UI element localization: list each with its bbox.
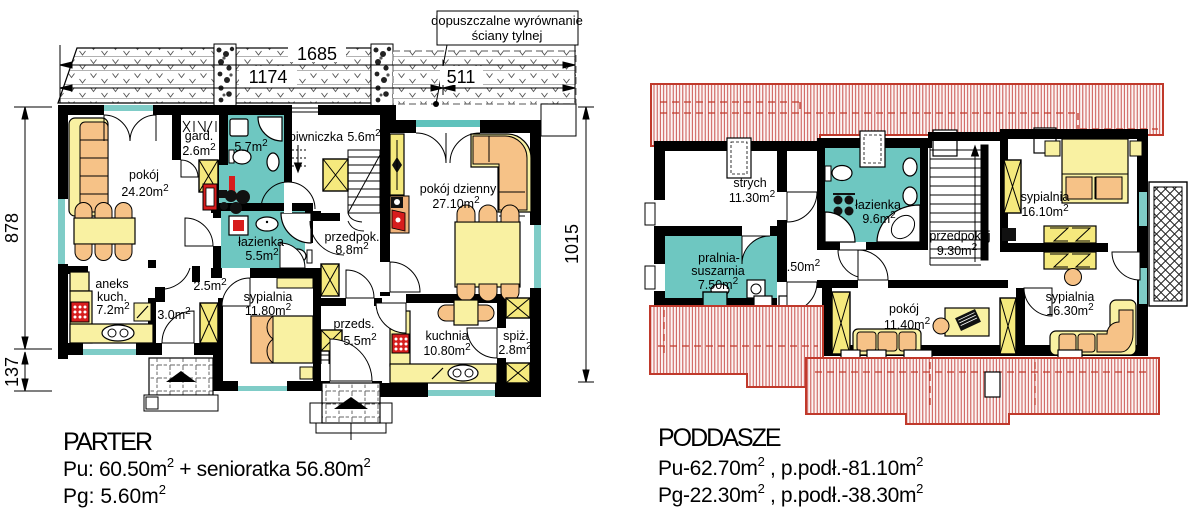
- svg-text:przeds.: przeds.: [334, 317, 375, 331]
- svg-text:16.30m2: 16.30m2: [1046, 302, 1094, 318]
- svg-text:Pg-22.30m2 , p.podł.-38.30m2: Pg-22.30m2 , p.podł.-38.30m2: [658, 481, 923, 507]
- svg-text:aneks: aneks: [95, 277, 128, 291]
- svg-text:strych: strych: [733, 176, 766, 190]
- svg-text:27.10m2: 27.10m2: [432, 195, 480, 211]
- svg-text:Pg: 5.60m2: Pg: 5.60m2: [63, 482, 166, 508]
- svg-text:kuch.: kuch.: [97, 290, 127, 304]
- svg-text:pralnia-: pralnia-: [698, 251, 740, 265]
- svg-text:137: 137: [2, 357, 22, 387]
- svg-text:9.30m2: 9.30m2: [937, 242, 978, 258]
- svg-text:sypialnia: sypialnia: [1021, 190, 1070, 204]
- svg-text:511: 511: [447, 67, 476, 87]
- svg-text:przedpok.: przedpok.: [325, 230, 380, 244]
- svg-text:11.80m2: 11.80m2: [245, 302, 292, 318]
- svg-text:dopuszczalne wyrównanie: dopuszczalne wyrównanie: [431, 13, 583, 28]
- svg-text:11.40m2: 11.40m2: [884, 316, 931, 332]
- svg-text:16.10m2: 16.10m2: [1021, 203, 1069, 219]
- svg-text:1174: 1174: [249, 67, 288, 87]
- svg-text:pokój: pokój: [129, 168, 159, 182]
- svg-text:piwniczka: piwniczka: [289, 130, 343, 144]
- svg-text:PODDASZE: PODDASZE: [658, 424, 781, 452]
- svg-text:Pu: 60.50m2 + senioratka 56.: Pu: 60.50m2 + senioratka 56.80m2: [63, 455, 371, 481]
- svg-text:11.30m2: 11.30m2: [729, 189, 776, 205]
- svg-text:sypialnia: sypialnia: [1046, 290, 1095, 304]
- svg-text:ściany tylnej: ściany tylnej: [472, 28, 543, 43]
- svg-text:1685: 1685: [297, 44, 337, 64]
- svg-text:kuchnia: kuchnia: [425, 329, 468, 343]
- svg-text:przedpokój: przedpokój: [929, 229, 990, 243]
- svg-text:gard.: gard.: [185, 129, 214, 143]
- svg-text:PARTER: PARTER: [63, 428, 152, 456]
- svg-text:24.20m2: 24.20m2: [121, 183, 169, 199]
- svg-text:878: 878: [2, 213, 22, 243]
- svg-text:7.50m2: 7.50m2: [698, 276, 739, 292]
- svg-text:3.50m2: 3.50m2: [780, 258, 821, 274]
- svg-text:1015: 1015: [562, 224, 582, 264]
- svg-text:10.80m2: 10.80m2: [423, 342, 471, 358]
- svg-text:pokój dzienny: pokój dzienny: [420, 182, 497, 196]
- svg-text:spiż.: spiż.: [503, 329, 529, 343]
- svg-text:pokój: pokój: [889, 302, 919, 316]
- svg-text:Pu-62.70m2 , p.podł.-81.10m2: Pu-62.70m2 , p.podł.-81.10m2: [658, 454, 923, 480]
